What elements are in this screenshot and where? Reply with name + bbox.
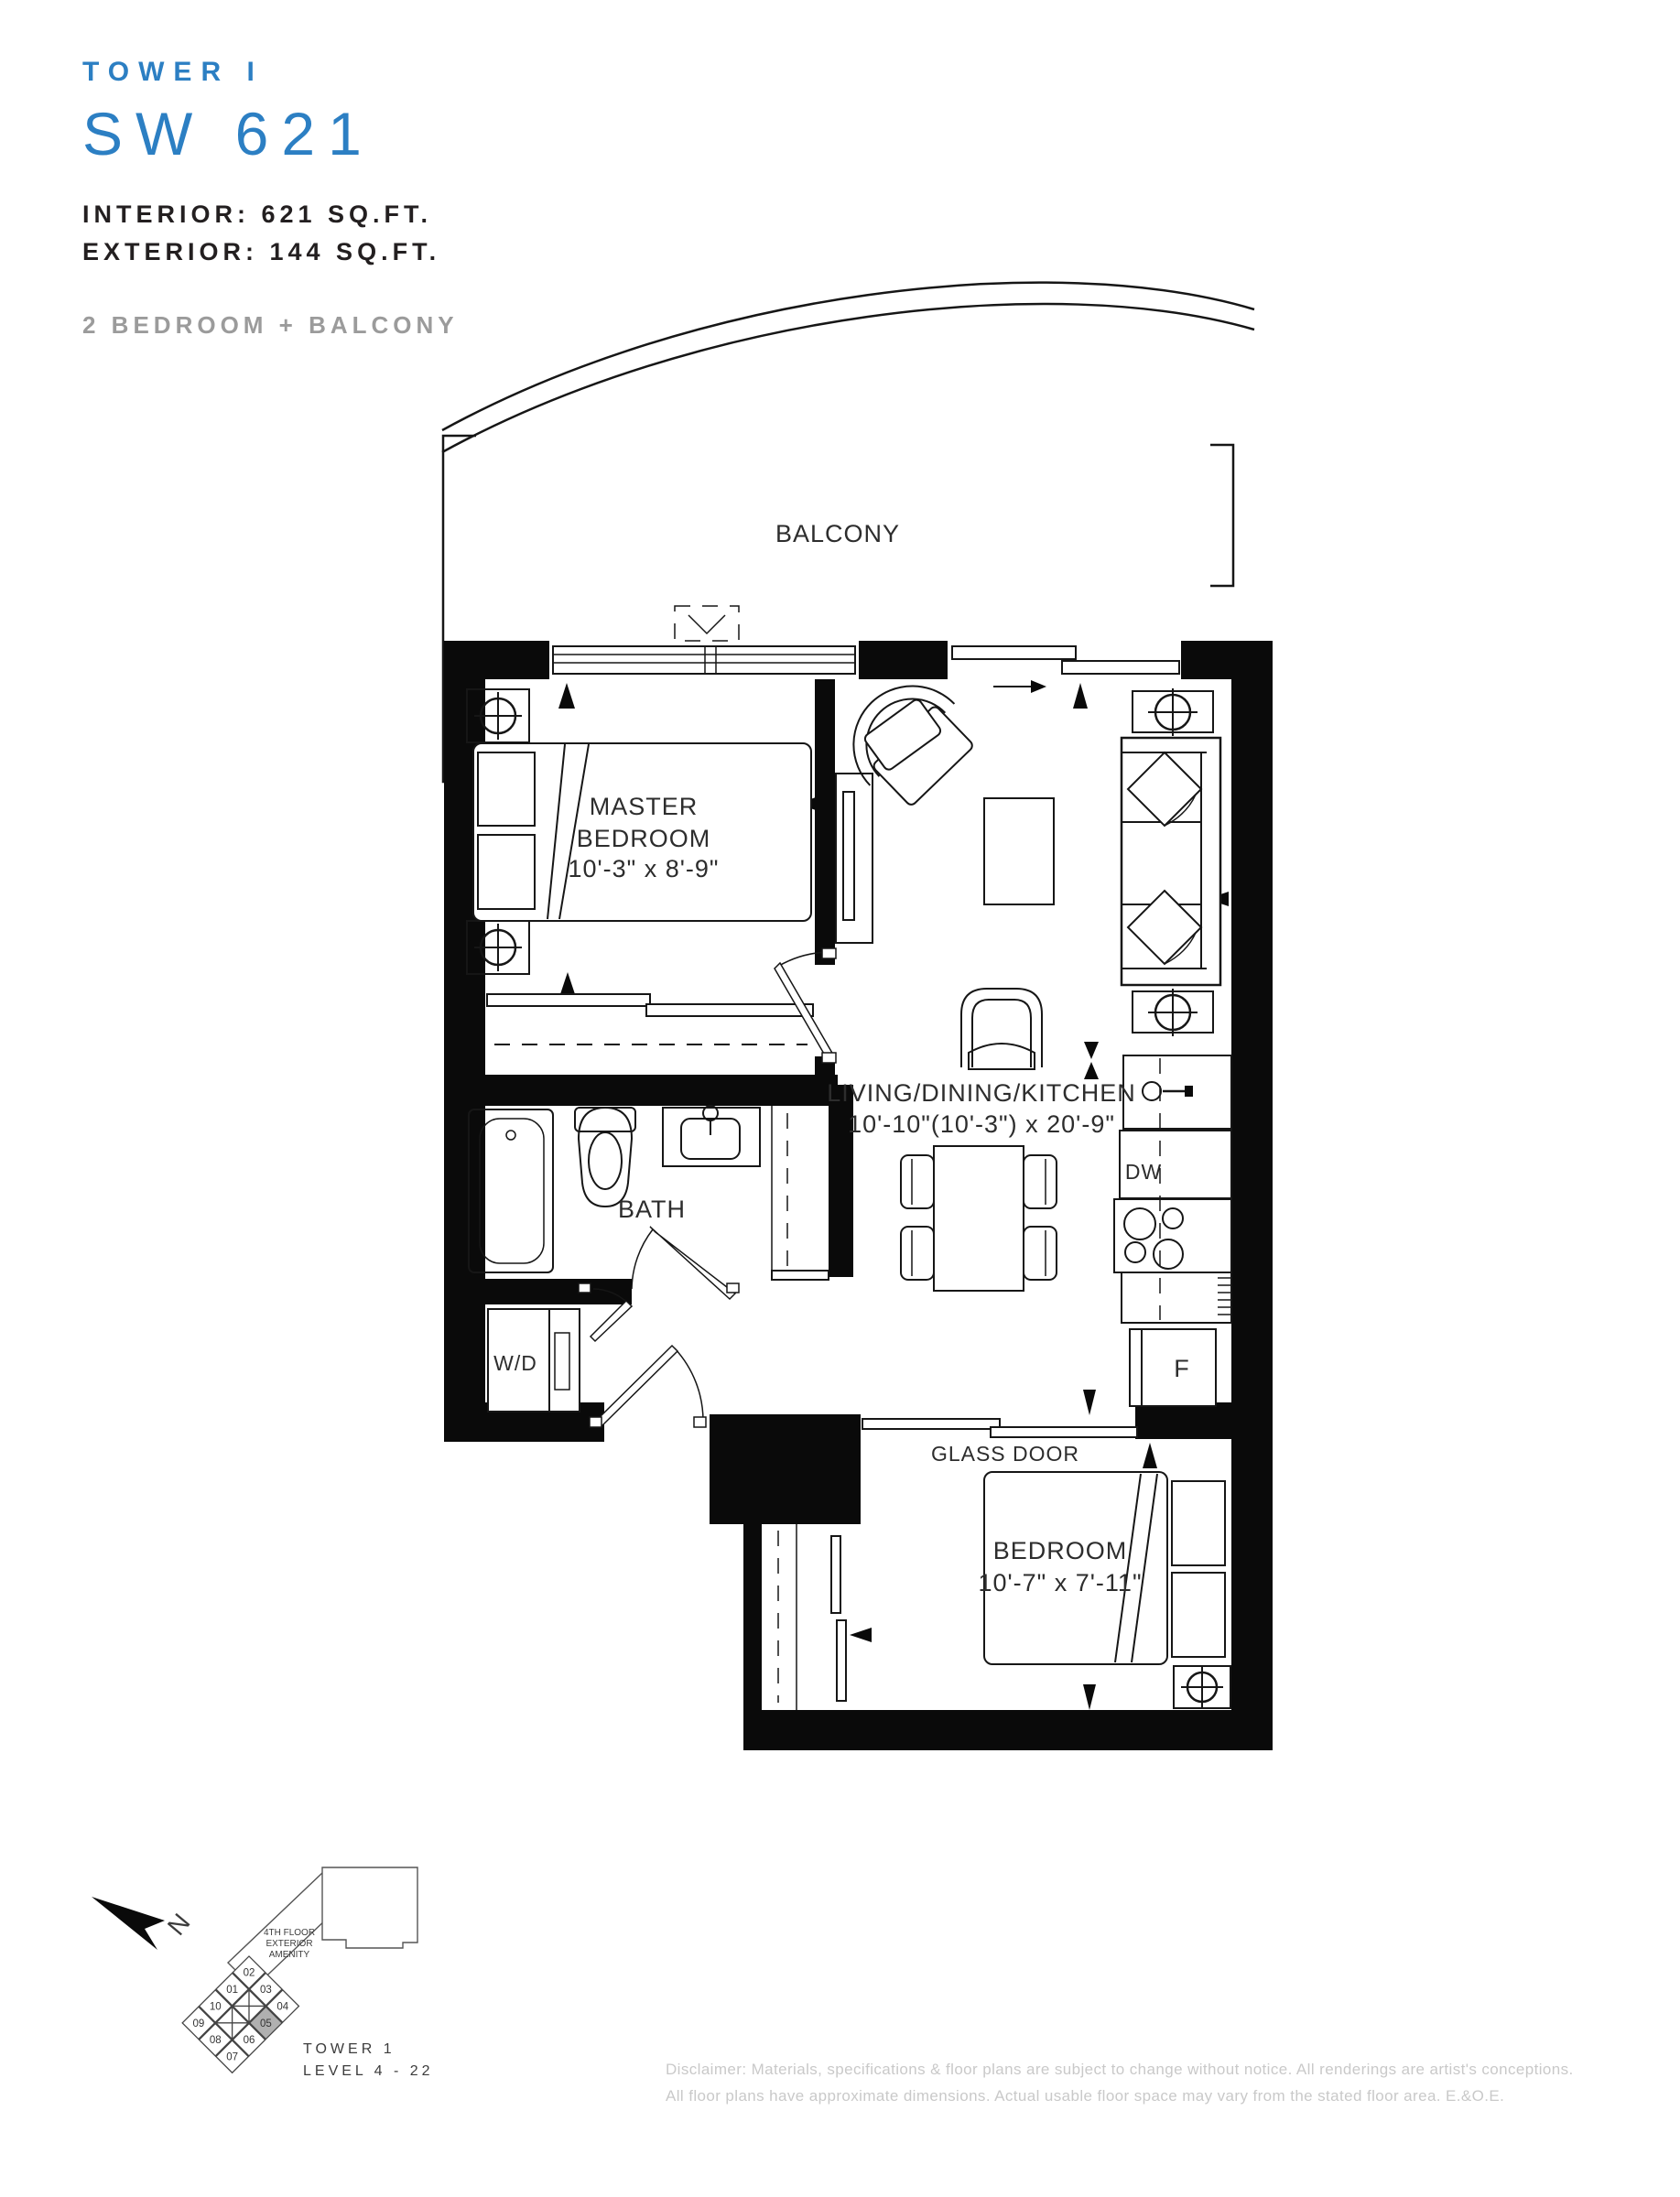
keyplan-unit-09: 09 [192, 2018, 204, 2029]
vanity-sink [663, 1106, 760, 1166]
dining-armchair [961, 989, 1042, 1069]
living-dining-kitchen: DW F [827, 662, 1231, 1406]
north-label: N [162, 1908, 196, 1940]
armchair [829, 662, 985, 817]
living-label: LIVING/DINING/KITCHEN [827, 1079, 1136, 1107]
dishwasher-label: DW [1125, 1160, 1162, 1184]
fridge-label: F [1174, 1355, 1190, 1382]
disclaimer: Disclaimer: Materials, specifications & … [666, 2056, 1654, 2109]
tick-marker [1084, 1042, 1099, 1059]
master-label-1: MASTER [590, 793, 699, 820]
counter [1122, 1272, 1231, 1323]
disclaimer-line-2: All floor plans have approximate dimensi… [666, 2083, 1654, 2109]
keyplan-unit-07: 07 [226, 2052, 238, 2063]
keyplan-units: 02 03 04 01 05 10 06 09 08 07 [182, 1956, 298, 2073]
floor-plan-svg: BALCONY [0, 0, 1680, 2197]
glass-door-label: GLASS DOOR [931, 1442, 1079, 1466]
master-bedroom: MASTER BEDROOM 10'-3" x 8'-9" [467, 689, 836, 1063]
tick-marker [1084, 1062, 1099, 1079]
kitchen: DW F [1114, 1055, 1231, 1406]
living-dims: 10'-10"(10'-3") x 20'-9" [848, 1110, 1115, 1138]
fridge: F [1130, 1329, 1216, 1406]
tick-marker [1143, 1443, 1157, 1468]
balcony-label: BALCONY [775, 520, 900, 547]
keyplan-unit-03: 03 [260, 1985, 272, 1996]
end-table [1133, 688, 1213, 736]
keyplan-level-label: LEVEL 4 - 22 [303, 2063, 434, 2079]
nightstand [1174, 1666, 1230, 1708]
keyplan-unit-02: 02 [244, 1968, 255, 1979]
entry-door [590, 1346, 706, 1427]
end-table [1133, 989, 1213, 1036]
master-label-2: BEDROOM [577, 825, 711, 852]
washer-dryer: W/D [488, 1309, 580, 1412]
dining-set [901, 1146, 1057, 1291]
keyplan-unit-01: 01 [226, 1985, 238, 1996]
dining-table [934, 1146, 1024, 1291]
keyplan-unit-10: 10 [210, 2001, 222, 2012]
balcony-sliding-door [952, 646, 1179, 693]
coffee-table [984, 798, 1054, 904]
sofa [1122, 738, 1220, 985]
floorplan-page: TOWER I SW 621 INTERIOR: 621 SQ.FT. EXTE… [0, 0, 1680, 2197]
toilet [575, 1108, 635, 1207]
tick-marker [560, 972, 575, 994]
glass-door [862, 1419, 1137, 1437]
keyplan-unit-06: 06 [244, 2035, 255, 2046]
bed [984, 1472, 1225, 1664]
disclaimer-line-1: Disclaimer: Materials, specifications & … [666, 2056, 1654, 2083]
keyplan-unit-08: 08 [210, 2035, 222, 2046]
amenity-label-2: EXTERIOR [266, 1939, 312, 1949]
keyplan: N 4TH FLOOR EXTERIOR AMENITY [92, 1867, 434, 2079]
tower2-outline [322, 1867, 417, 1948]
keyplan-unit-04: 04 [276, 2001, 288, 2012]
keyplan-tower-label: TOWER 1 [303, 2041, 396, 2057]
keyplan-unit-05: 05 [260, 2018, 272, 2029]
tick-marker [1083, 1390, 1096, 1415]
tick-marker [558, 683, 575, 709]
tick-marker [1073, 683, 1088, 709]
bedroom-closet [778, 1524, 846, 1710]
master-dims: 10'-3" x 8'-9" [568, 855, 719, 882]
tick-marker [1083, 1684, 1096, 1710]
bedroom-label: BEDROOM [993, 1537, 1128, 1564]
master-window [553, 606, 855, 674]
amenity-label-3: AMENITY [269, 1950, 310, 1960]
bedroom-dims: 10'-7" x 7'-11" [978, 1569, 1142, 1596]
bath: BATH [469, 1106, 829, 1299]
wd-label: W/D [493, 1351, 537, 1375]
foyer-closet [772, 1106, 829, 1280]
north-arrow-icon: N [92, 1897, 196, 1950]
master-closet [487, 994, 813, 1044]
tick-marker [850, 1628, 872, 1642]
tv-media-unit [836, 774, 873, 943]
bath-label: BATH [618, 1196, 686, 1223]
amenity-label-1: 4TH FLOOR [264, 1928, 315, 1938]
